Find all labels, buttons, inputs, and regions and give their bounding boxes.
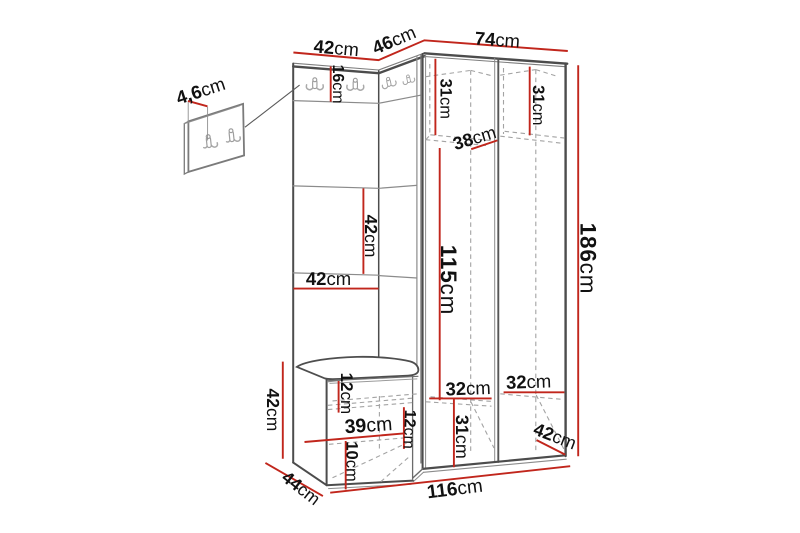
- svg-text:31cm: 31cm: [529, 85, 547, 125]
- svg-text:42cm: 42cm: [306, 268, 351, 289]
- svg-text:12cm: 12cm: [337, 373, 356, 415]
- svg-text:32cm: 32cm: [506, 370, 552, 393]
- svg-text:31cm: 31cm: [436, 79, 454, 119]
- svg-text:10cm: 10cm: [343, 441, 361, 481]
- svg-text:12cm: 12cm: [400, 410, 418, 450]
- svg-text:115cm: 115cm: [436, 245, 461, 315]
- svg-text:39cm: 39cm: [344, 413, 393, 438]
- svg-text:42cm: 42cm: [263, 389, 283, 432]
- svg-text:42cm: 42cm: [361, 215, 381, 258]
- svg-text:32cm: 32cm: [445, 377, 491, 400]
- svg-text:42cm: 42cm: [313, 35, 360, 60]
- svg-text:186cm: 186cm: [575, 223, 600, 295]
- svg-text:31cm: 31cm: [452, 415, 472, 459]
- svg-text:74cm: 74cm: [474, 27, 521, 51]
- svg-text:16cm: 16cm: [329, 64, 346, 103]
